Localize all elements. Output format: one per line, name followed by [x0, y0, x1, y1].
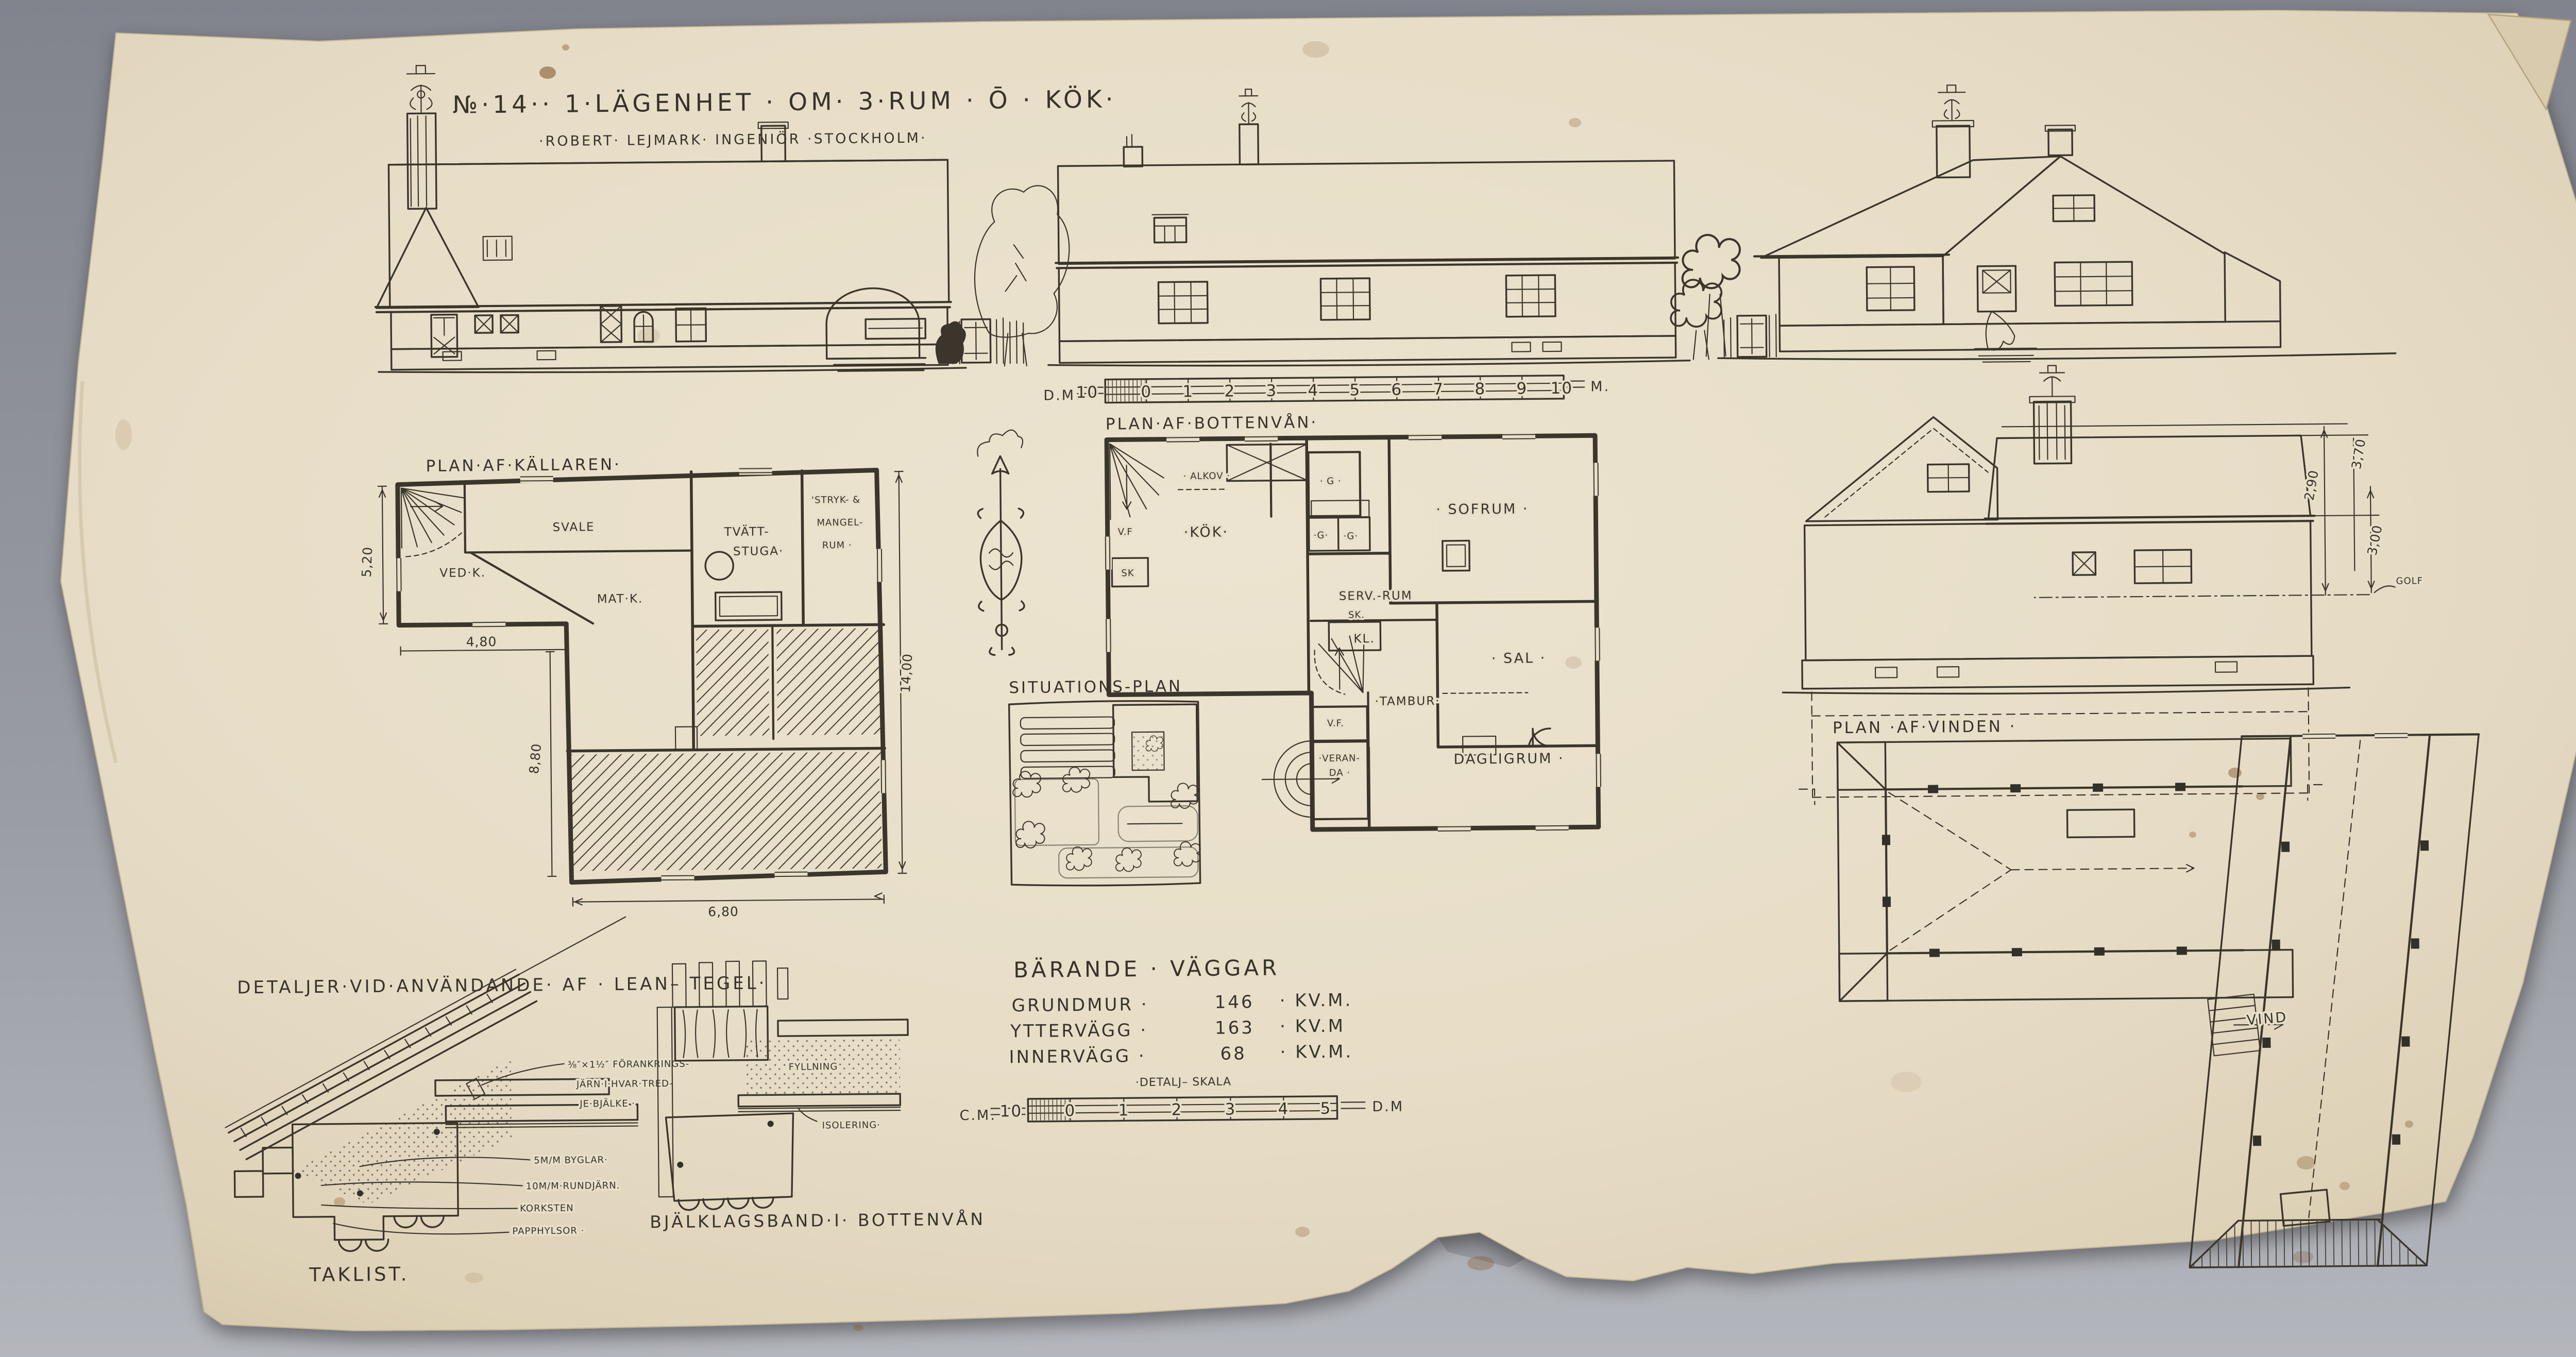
detail-caption: TAKLIST. — [309, 1263, 410, 1286]
room-label: SERV.-RUM — [1339, 589, 1413, 603]
dim-label: 14,00 — [898, 653, 916, 693]
photo-architectural-drawing: №·14·· 1·LÄGENHET · OM· 3·RUM · Ō · KÖK·… — [0, 0, 2576, 1357]
room-label: · G · — [1320, 476, 1342, 487]
attic-title: PLAN ·AF·VINDEN · — [1833, 717, 2017, 737]
scale-right-label: M. — [1590, 379, 1610, 395]
table-unit: · KV.M. — [1280, 1041, 1353, 1062]
annotation: KORKSTEN — [520, 1203, 574, 1214]
annotation: 5M/M BYGLAR· — [534, 1155, 608, 1166]
table-label: INNERVÄGG · — [1009, 1046, 1146, 1067]
room-label: MANGEL- — [817, 517, 863, 529]
situation-title: SITUATIONS-PLAN — [1009, 677, 1182, 697]
room-label: 'STRYK- & — [811, 495, 860, 506]
tick: 2 — [1224, 382, 1235, 400]
tick: 4 — [1308, 381, 1319, 400]
room-label: · SAL · — [1492, 650, 1547, 667]
tick: 3 — [1225, 1100, 1236, 1118]
drawing-sheet: №·14·· 1·LÄGENHET · OM· 3·RUM · Ō · KÖK·… — [0, 0, 2576, 1357]
room-label: TVÄTT- — [723, 524, 769, 539]
detail-scale-right: D.M — [1372, 1099, 1404, 1115]
room-label: SK — [1121, 568, 1134, 579]
room-label: V.F. — [1327, 718, 1344, 729]
tick: 3 — [1266, 382, 1277, 400]
tick: 0 — [1064, 1101, 1076, 1120]
room-label: VIND — [2246, 1009, 2289, 1028]
tick: 6 — [1391, 381, 1402, 399]
sheet-subtitle: ·ROBERT· LEJMARK· INGENIÖR ·STOCKHOLM· — [539, 130, 927, 150]
floor-level-label: GOLF — [2396, 575, 2423, 586]
room-label: DAGLIGRUM · — [1453, 751, 1564, 768]
annotation: ISOLERING· — [822, 1119, 880, 1131]
tick: 4 — [1278, 1100, 1289, 1118]
tick: 2 — [1171, 1100, 1182, 1119]
annotation: JÄRN·I·HVAR·TRED- — [576, 1078, 673, 1090]
table-value: 163 — [1215, 1017, 1255, 1039]
dim-label: 8,80 — [527, 742, 545, 774]
tick: 1 — [1182, 382, 1194, 401]
tick: 0 — [1141, 383, 1152, 401]
room-label: · SOFRUM · — [1436, 501, 1529, 518]
table-unit: · KV.M. — [1279, 990, 1352, 1011]
room-label: RUM · — [822, 540, 852, 551]
room-label: DA · — [1329, 767, 1350, 778]
room-label: SVALE — [552, 520, 595, 534]
room-label: V.F — [1118, 527, 1133, 537]
annotation: PAPPHYLSOR · — [512, 1225, 584, 1236]
basement-title: PLAN·AF·KÄLLAREN· — [426, 455, 621, 476]
table-heading: BÄRANDE · VÄGGAR — [1013, 955, 1280, 983]
detail-scale-left: C.M. — [959, 1107, 996, 1124]
annotation: FYLLNING — [789, 1061, 838, 1073]
room-label: STUGA· — [733, 545, 784, 558]
annotation: ⅜″×1½″ FÖRANKRINGS- — [568, 1058, 690, 1071]
room-label: ·G· — [1314, 530, 1329, 541]
room-label: ·VERAN- — [1318, 753, 1360, 764]
room-label: VED·K. — [439, 566, 486, 580]
tick: 8 — [1475, 380, 1486, 398]
room-label: ·KÖK· — [1184, 524, 1229, 541]
dim-label: 6,80 — [708, 904, 739, 920]
dim-label: 5,20 — [359, 546, 376, 578]
ground-title: PLAN·AF·BOTTENVÅN· — [1106, 413, 1318, 434]
room-label: SK. — [1348, 609, 1365, 620]
tick: 5 — [1349, 381, 1361, 399]
room-label: ·G· — [1344, 531, 1359, 541]
table-unit: · KV.M — [1280, 1016, 1345, 1037]
room-label: KL. — [1353, 632, 1375, 646]
tick: 10 — [1076, 383, 1098, 402]
annotation: 10M/M·RUNDJÄRN. — [526, 1180, 620, 1192]
tick: 5 — [1320, 1099, 1331, 1118]
table-label: GRUNDMUR · — [1011, 994, 1148, 1016]
room-label: · ALKOV · — [1183, 470, 1230, 482]
table-value: 68 — [1220, 1043, 1247, 1064]
annotation: JE·BJÄLKE · — [579, 1098, 635, 1110]
dim-label: 4,80 — [466, 634, 497, 650]
tick: 10 — [1000, 1102, 1023, 1121]
tick: 9 — [1516, 379, 1528, 398]
sheet-title: №·14·· 1·LÄGENHET · OM· 3·RUM · Ō · KÖK· — [452, 85, 1117, 119]
table-label: YTTERVÄGG · — [1010, 1020, 1148, 1042]
table-value: 146 — [1214, 992, 1254, 1013]
room-label: ·TAMBUR· — [1375, 694, 1440, 708]
tick: 7 — [1433, 380, 1444, 399]
detail-scale-title: ·DETALJ– SKALA — [1136, 1076, 1231, 1090]
room-label: MAT·K. — [597, 592, 643, 606]
detail-caption: BJÄLKLAGSBAND·I· BOTTENVÅN — [650, 1209, 986, 1232]
tick: 1 — [1118, 1101, 1129, 1119]
tick: 10 — [1550, 379, 1573, 398]
